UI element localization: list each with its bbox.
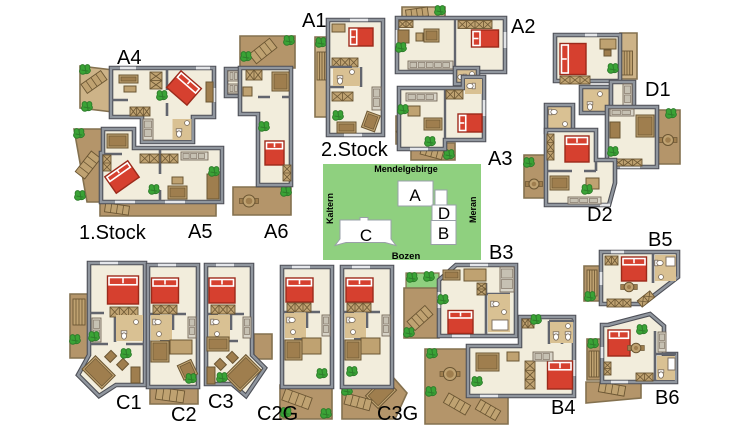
svg-text:A5: A5 bbox=[188, 221, 212, 243]
svg-text:A: A bbox=[409, 186, 421, 205]
svg-text:A4: A4 bbox=[117, 47, 141, 69]
svg-text:2.Stock: 2.Stock bbox=[321, 139, 389, 161]
svg-text:C: C bbox=[360, 226, 372, 245]
svg-text:D1: D1 bbox=[645, 79, 671, 101]
svg-text:B4: B4 bbox=[551, 397, 575, 419]
svg-text:A1: A1 bbox=[302, 10, 326, 32]
svg-text:1.Stock: 1.Stock bbox=[79, 222, 147, 244]
svg-text:C2G: C2G bbox=[257, 403, 298, 425]
svg-text:Meran: Meran bbox=[468, 196, 478, 223]
svg-text:D2: D2 bbox=[587, 204, 613, 226]
svg-text:C3: C3 bbox=[208, 391, 234, 413]
svg-text:Bozen: Bozen bbox=[392, 251, 421, 262]
svg-text:A3: A3 bbox=[488, 148, 512, 170]
svg-text:C1: C1 bbox=[116, 392, 142, 414]
svg-text:B5: B5 bbox=[648, 229, 672, 251]
svg-text:D: D bbox=[438, 204, 450, 223]
svg-text:C3G: C3G bbox=[377, 403, 418, 425]
svg-text:B6: B6 bbox=[655, 387, 679, 409]
svg-text:A2: A2 bbox=[511, 16, 535, 38]
svg-text:Kaltern: Kaltern bbox=[325, 193, 335, 224]
svg-text:B: B bbox=[438, 224, 449, 243]
svg-text:C2: C2 bbox=[171, 404, 197, 426]
svg-text:A6: A6 bbox=[264, 221, 288, 243]
svg-text:B3: B3 bbox=[489, 242, 513, 264]
svg-text:Mendelgebirge: Mendelgebirge bbox=[374, 164, 438, 174]
